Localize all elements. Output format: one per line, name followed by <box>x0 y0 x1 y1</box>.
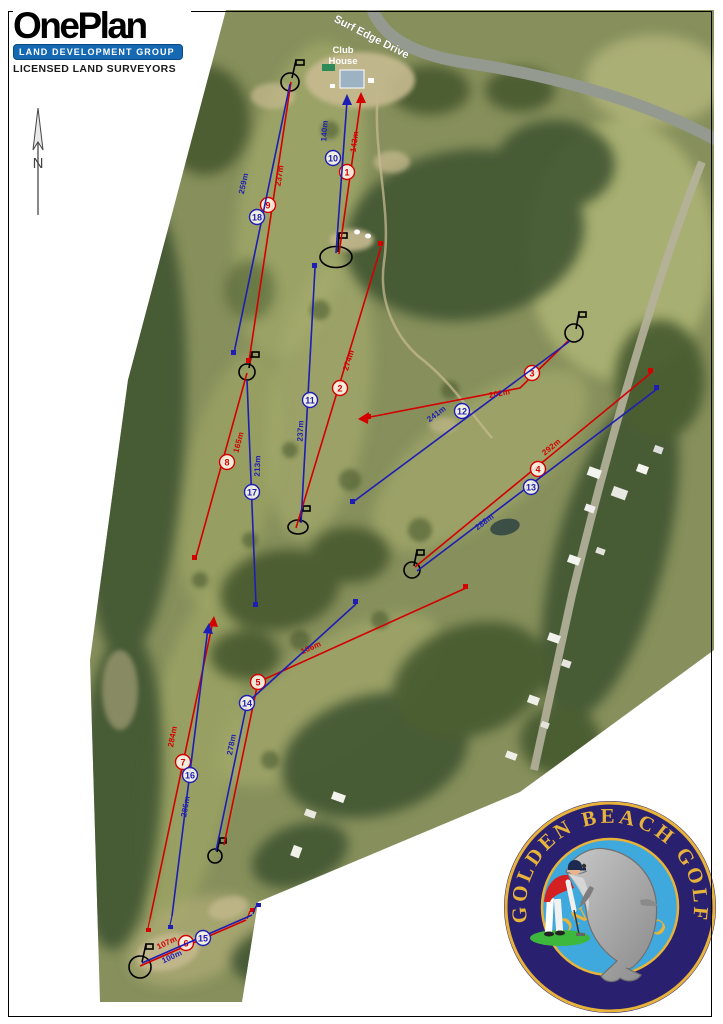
survey-plan-page: Surf Edge Drive Club House 1 143m 2 274m <box>0 0 723 1024</box>
hole-5-number: 5 <box>255 678 260 688</box>
hole-15-number: 15 <box>198 934 208 944</box>
oneplan-tagline-bar: LAND DEVELOPMENT GROUP <box>13 44 183 60</box>
hole-11-number: 11 <box>305 396 315 406</box>
hole-8-number: 8 <box>224 458 229 468</box>
tee-marker-3 <box>366 414 371 419</box>
hole-4-number: 4 <box>535 465 540 475</box>
tee-marker-13 <box>654 385 659 390</box>
hole-14-number: 14 <box>242 699 252 709</box>
north-arrow: N <box>33 108 44 215</box>
tee-marker-14 <box>353 599 358 604</box>
tee-marker-7 <box>146 928 151 932</box>
hole-7-number: 7 <box>180 758 185 768</box>
tee-marker-12 <box>350 499 355 504</box>
north-label: N <box>33 155 44 172</box>
hole-17-distance: 213m <box>253 455 263 477</box>
tee-marker-2 <box>378 241 383 246</box>
tee-marker-17 <box>253 602 258 607</box>
course-aerial-map: Surf Edge Drive Club House 1 143m 2 274m <box>0 0 723 1024</box>
oneplan-wordmark: OnePlan <box>13 11 183 41</box>
clubhouse-label-2: House <box>328 56 357 67</box>
hole-12-number: 12 <box>457 407 467 417</box>
tee-marker-5 <box>463 584 468 589</box>
hole-17-number: 17 <box>247 488 257 498</box>
hole-11-distance: 237m <box>295 420 305 442</box>
tee-marker-4 <box>648 368 653 373</box>
hole-13-number: 13 <box>526 483 536 493</box>
hole-10-distance: 140m <box>319 120 329 142</box>
hole-18-number: 18 <box>252 213 262 223</box>
hole-1-number: 1 <box>344 168 349 178</box>
hole-10-number: 10 <box>328 154 338 164</box>
club-logo: GOLDEN BEACH GOLF CLUB INC <box>504 801 716 1013</box>
tee-marker-16 <box>168 925 173 929</box>
tee-marker-15 <box>256 903 261 907</box>
oneplan-subtitle: LICENSED LAND SURVEYORS <box>13 63 183 75</box>
clubhouse-label-1: Club <box>332 45 353 56</box>
tee-marker-9 <box>246 358 251 363</box>
hole-2-number: 2 <box>337 384 342 394</box>
tee-marker-18 <box>231 350 236 355</box>
tee-marker-11 <box>312 263 317 268</box>
tee-marker-8 <box>192 555 197 560</box>
oneplan-logo: OnePlan LAND DEVELOPMENT GROUP LICENSED … <box>13 9 191 79</box>
hole-16-number: 16 <box>185 771 195 781</box>
